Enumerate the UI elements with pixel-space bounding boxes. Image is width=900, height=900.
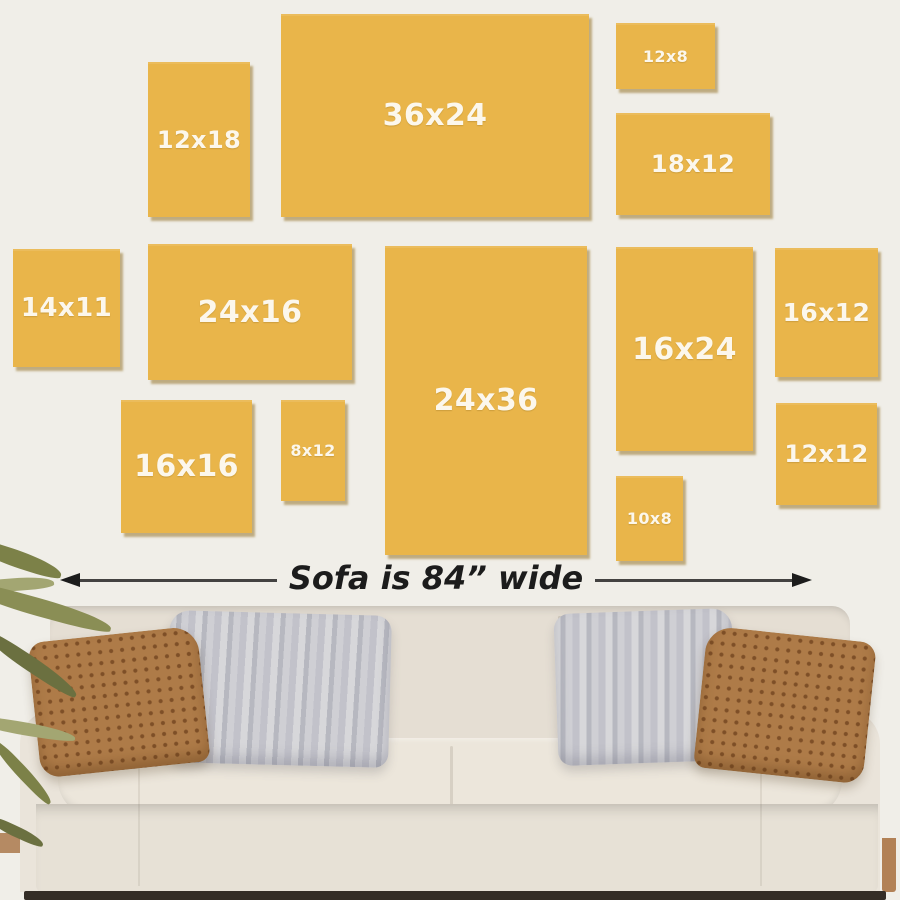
dimension-line-left (80, 579, 277, 582)
frame-8x12: 8x12 (281, 400, 345, 501)
frame-size-label: 8x12 (290, 441, 335, 460)
frame-10x8: 10x8 (616, 476, 683, 561)
frame-16x16: 16x16 (121, 400, 252, 533)
frame-size-label: 36x24 (383, 98, 488, 133)
frame-14x11: 14x11 (13, 249, 120, 367)
wall-art-size-guide: 12x1836x2412x818x1214x1124x1624x3616x241… (0, 0, 900, 900)
frame-size-label: 24x36 (434, 383, 539, 418)
frame-16x12: 16x12 (775, 248, 878, 377)
frame-24x36: 24x36 (385, 246, 587, 555)
frame-24x16: 24x16 (148, 244, 352, 380)
frame-size-label: 16x16 (134, 449, 239, 484)
arrowhead-left-icon (60, 573, 80, 587)
frame-12x18: 12x18 (148, 62, 250, 217)
frame-size-label: 16x24 (632, 332, 737, 367)
frame-size-label: 24x16 (198, 295, 303, 330)
frame-size-label: 12x12 (784, 440, 868, 468)
frames-layer: 12x1836x2412x818x1214x1124x1624x3616x241… (0, 0, 900, 900)
frame-16x24: 16x24 (616, 247, 753, 451)
frame-size-label: 12x18 (157, 126, 241, 154)
floor-shadow (24, 891, 886, 900)
frame-12x12: 12x12 (776, 403, 877, 505)
frame-size-label: 12x8 (643, 47, 688, 66)
frame-18x12: 18x12 (616, 113, 770, 215)
frame-size-label: 10x8 (627, 509, 672, 528)
frame-size-label: 16x12 (783, 298, 871, 327)
frame-size-label: 18x12 (651, 150, 735, 178)
frame-12x8: 12x8 (616, 23, 715, 89)
arrowhead-right-icon (792, 573, 812, 587)
dimension-line-right (595, 579, 792, 582)
sofa-width-dimension: Sofa is 84” wide (60, 558, 812, 602)
frame-36x24: 36x24 (281, 14, 589, 217)
sofa-width-caption: Sofa is 84” wide (277, 559, 595, 597)
frame-size-label: 14x11 (21, 293, 112, 323)
